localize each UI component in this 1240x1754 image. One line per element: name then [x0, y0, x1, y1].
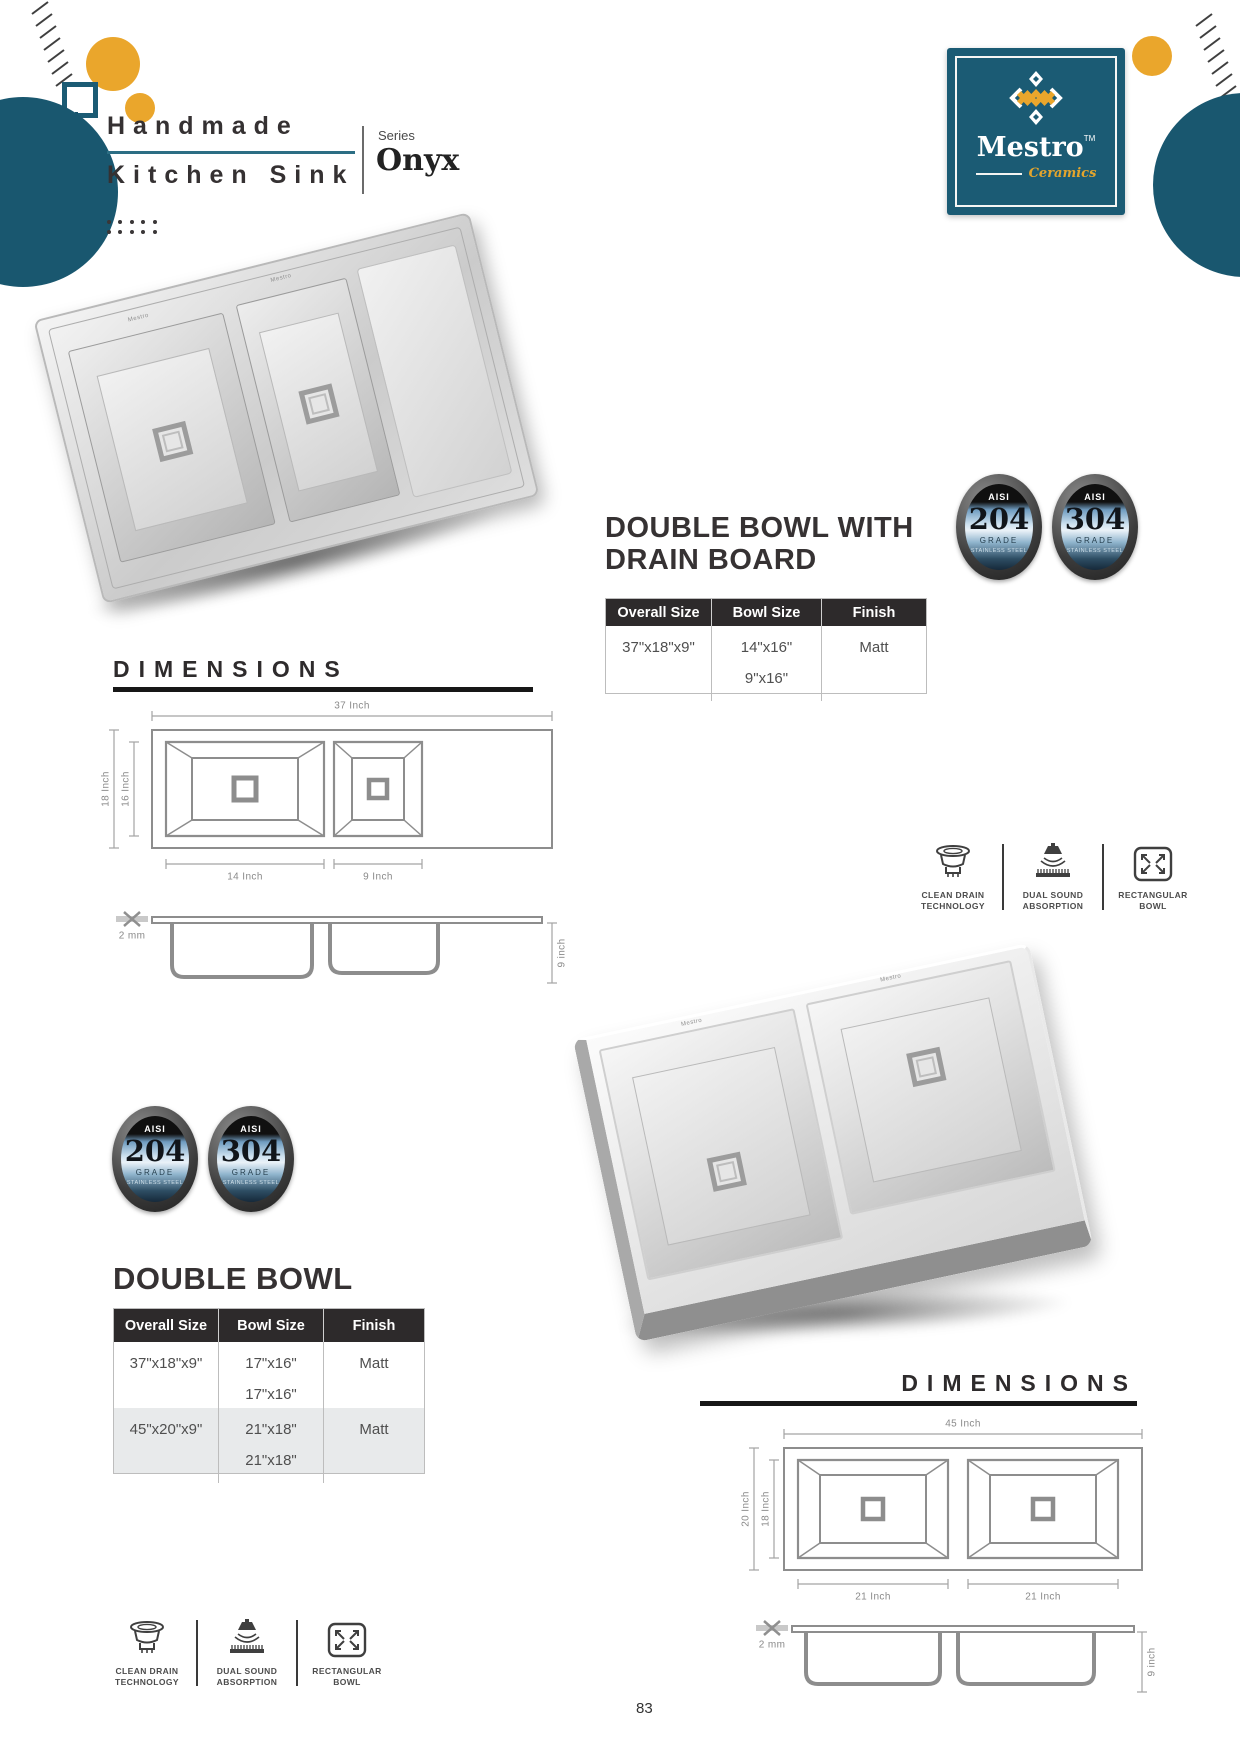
cell-finish: Matt: [323, 1408, 424, 1483]
clean-drain-icon: [125, 1618, 169, 1662]
table-row: 45"x20"x9" 21"x18" 21"x18" Matt: [114, 1408, 424, 1473]
brand-tagline-rule: [976, 173, 1022, 175]
title-divider-rule: [107, 151, 355, 154]
dim-label-inner-depth: 16 Inch: [121, 771, 132, 807]
dim-label-inner-depth: 18 Inch: [761, 1491, 772, 1527]
dim-label-thickness: 2 mm: [119, 931, 146, 942]
product1-photo: Mestro Mestro: [33, 212, 539, 604]
series-name: Onyx: [376, 143, 459, 178]
dim-label-bowl-height: 9 inch: [1147, 1647, 1158, 1676]
decor-circle-teal-left: [0, 97, 118, 287]
clean-drain-icon: [931, 842, 975, 886]
dimensions-underline: [113, 687, 533, 692]
page-number: 83: [636, 1700, 653, 1717]
feature-divider: [196, 1620, 198, 1686]
product2-dimensions-title: DIMENSIONS: [700, 1370, 1137, 1397]
brand-logo: MestroTM Ceramics: [947, 48, 1125, 215]
product2-topview-drawing: 45 Inch 20 Inch 18 Inch 21 Inch 21 Inch: [742, 1418, 1152, 1600]
table-row: 37"x18"x9" 17"x16" 17"x16" Matt: [114, 1342, 424, 1408]
brand-trademark: TM: [1084, 134, 1096, 143]
cell-bowl-size: 21"x18" 21"x18": [218, 1408, 323, 1483]
dim-label-bowl-height: 9 inch: [557, 938, 568, 967]
product1-title-line2: DRAIN BOARD: [605, 544, 914, 576]
column-header-finish: Finish: [323, 1309, 424, 1342]
product1-title-line1: DOUBLE BOWL WITH: [605, 512, 914, 544]
page-title-line2: Kitchen Sink: [107, 161, 354, 190]
dim-label-bowl1-width: 21 Inch: [855, 1592, 891, 1603]
column-header-bowl-size: Bowl Size: [218, 1309, 323, 1342]
aisi-304-badge: AISI 304 GRADE STAINLESS STEEL: [208, 1106, 294, 1212]
cell-overall-size: 37"x18"x9": [606, 626, 711, 701]
decor-circle-teal-right: [1153, 93, 1240, 277]
dim-label-bowl2-width: 21 Inch: [1025, 1592, 1061, 1603]
aisi-204-badge: AISI 204 GRADE STAINLESS STEEL: [956, 474, 1042, 580]
dimensions-underline: [700, 1401, 1137, 1406]
rectangular-bowl-icon: [1131, 842, 1175, 886]
cell-overall-size: 45"x20"x9": [114, 1408, 218, 1483]
cell-bowl-size: 14"x16" 9"x16": [711, 626, 821, 701]
page-title-line1: Handmade: [107, 112, 299, 141]
series-label: Series: [378, 128, 415, 143]
dim-label-bowl1-width: 14 Inch: [227, 872, 263, 883]
drain-icon: [906, 1047, 946, 1087]
feature-rectangular-bowl: RECTANGULAR BOWL: [1112, 842, 1194, 912]
feature-divider: [1102, 844, 1104, 910]
feature-dual-sound: DUAL SOUND ABSORPTION: [206, 1618, 288, 1688]
sink-brand-etch: Mestro: [681, 1018, 703, 1028]
sink-brand-etch: Mestro: [880, 973, 902, 983]
brand-logo-mark-icon: [1006, 68, 1066, 128]
product2-title: DOUBLE BOWL: [113, 1262, 353, 1297]
cell-overall-size: 37"x18"x9": [114, 1342, 218, 1417]
sink-bowl-left: [599, 1008, 844, 1280]
cell-finish: Matt: [821, 626, 926, 701]
dim-label-overall-width: 45 Inch: [945, 1419, 981, 1430]
dim-label-overall-width: 37 Inch: [334, 701, 370, 712]
brand-tagline: Ceramics: [1029, 166, 1097, 181]
product1-topview-drawing: 37 Inch 18 Inch 16 Inch 14 Inch 9 Inch: [100, 700, 570, 890]
product1-title: DOUBLE BOWL WITH DRAIN BOARD: [605, 512, 914, 577]
dim-label-outer-depth: 20 Inch: [741, 1491, 752, 1527]
feature-rectangular-bowl: RECTANGULAR BOWL: [306, 1618, 388, 1688]
brand-name: Mestro: [977, 132, 1084, 163]
aisi-204-badge: AISI 204 GRADE STAINLESS STEEL: [112, 1106, 198, 1212]
feature-clean-drain: CLEAN DRAIN TECHNOLOGY: [912, 842, 994, 912]
product1-sideview-drawing: 2 mm 9 inch: [100, 903, 570, 991]
decor-dots: [107, 220, 157, 234]
cell-finish: Matt: [323, 1342, 424, 1417]
feature-strip: CLEAN DRAIN TECHNOLOGY DUAL SOUND: [106, 1618, 388, 1688]
sink-bowl-right: [806, 960, 1056, 1215]
decor-hatch-top-left-icon: [28, 0, 80, 88]
aisi-304-badge: AISI 304 GRADE STAINLESS STEEL: [1052, 474, 1138, 580]
decor-hatch-top-right-icon: [1190, 10, 1238, 102]
product2-sideview-drawing: 2 mm 9 inch: [742, 1612, 1162, 1700]
product1-dimensions-title: DIMENSIONS: [113, 656, 349, 683]
feature-clean-drain: CLEAN DRAIN TECHNOLOGY: [106, 1618, 188, 1688]
dim-label-outer-depth: 18 Inch: [101, 771, 112, 807]
column-header-overall-size: Overall Size: [114, 1309, 218, 1342]
drain-icon: [707, 1151, 747, 1191]
feature-strip: CLEAN DRAIN TECHNOLOGY DUAL SOUND: [912, 842, 1194, 912]
table-row: 37"x18"x9" 14"x16" 9"x16" Matt: [606, 626, 926, 693]
dim-label-bowl2-width: 9 Inch: [363, 872, 393, 883]
dual-sound-icon: [225, 1618, 269, 1662]
rectangular-bowl-icon: [325, 1618, 369, 1662]
column-header-bowl-size: Bowl Size: [711, 599, 821, 626]
decor-circle-yellow-right: [1132, 36, 1172, 76]
cell-bowl-size: 17"x16" 17"x16": [218, 1342, 323, 1417]
feature-divider: [296, 1620, 298, 1686]
series-divider: [362, 126, 364, 194]
product2-spec-table: Overall Size Bowl Size Finish 37"x18"x9"…: [113, 1308, 425, 1474]
feature-dual-sound: DUAL SOUND ABSORPTION: [1012, 842, 1094, 912]
catalog-page: Handmade Kitchen Sink Series Onyx Mestro…: [0, 0, 1240, 1754]
column-header-overall-size: Overall Size: [606, 599, 711, 626]
product1-spec-table: Overall Size Bowl Size Finish 37"x18"x9"…: [605, 598, 927, 694]
dual-sound-icon: [1031, 842, 1075, 886]
product2-photo: Mestro Mestro: [573, 943, 1093, 1342]
column-header-finish: Finish: [821, 599, 926, 626]
dim-label-thickness: 2 mm: [759, 1640, 786, 1651]
feature-divider: [1002, 844, 1004, 910]
